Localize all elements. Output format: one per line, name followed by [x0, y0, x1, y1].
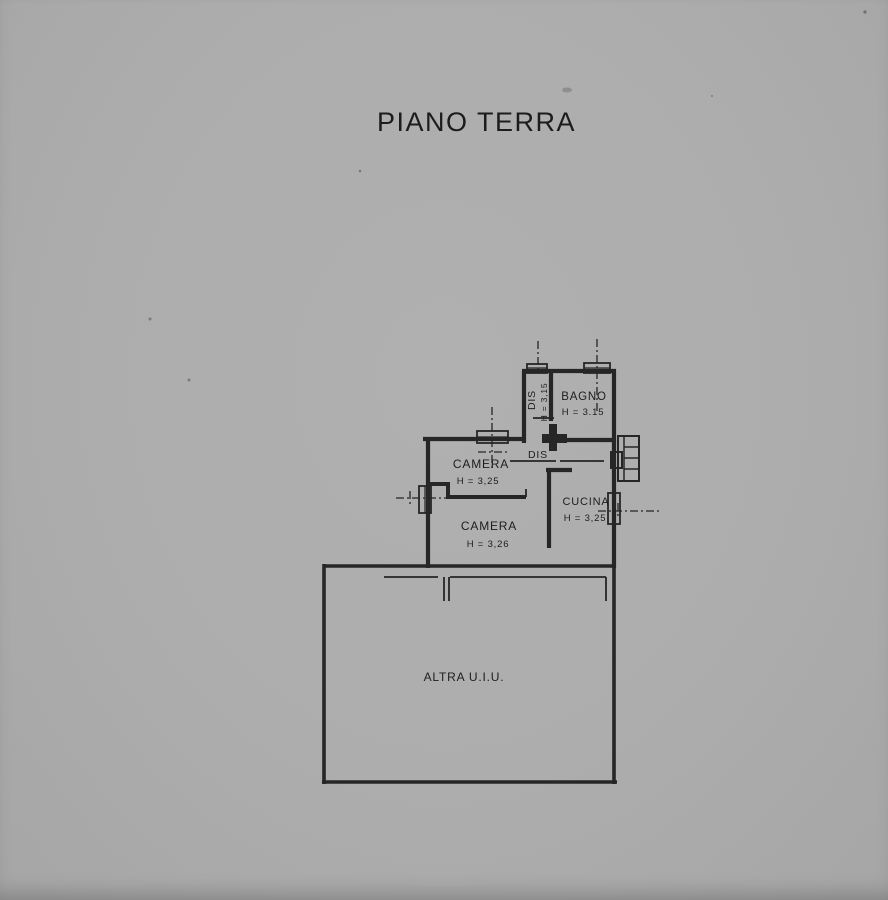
axis-lines: [396, 339, 660, 519]
room-bagno: BAGNO H = 3.15: [561, 391, 607, 418]
room-camera-upper: CAMERA H = 3,25: [453, 457, 509, 487]
room-cucina: CUCINA H = 3,25: [563, 496, 610, 524]
scan-artifacts: [149, 10, 867, 381]
room-label-bagno: BAGNO: [561, 391, 607, 403]
room-height-camera-lower: H = 3,26: [467, 539, 510, 550]
room-camera-lower: CAMERA H = 3,26: [461, 519, 517, 550]
room-label-altra-uiu: ALTRA U.I.U.: [424, 670, 505, 684]
scanned-page: PIANO TERRA: [0, 0, 888, 900]
room-dis-landing: DIS: [528, 449, 548, 461]
room-altra-uiu: ALTRA U.I.U.: [424, 670, 505, 684]
room-label-cucina: CUCINA: [563, 496, 610, 508]
room-label-camera-lower: CAMERA: [461, 519, 517, 533]
room-height-bagno: H = 3.15: [562, 407, 605, 418]
room-labels: DIS H = 3,15 BAGNO H = 3.15 DIS CAMERA H…: [424, 383, 610, 684]
room-dis-corridor: DIS H = 3,15: [526, 383, 549, 422]
room-height-cucina: H = 3,25: [564, 513, 607, 524]
room-height-camera-upper: H = 3,25: [457, 476, 500, 487]
wall-inner-faces: [384, 577, 606, 601]
wall-junction-cross: [542, 424, 567, 451]
room-label-dis-landing: DIS: [528, 449, 548, 461]
room-label-camera-upper: CAMERA: [453, 457, 509, 471]
room-label-dis-corridor: DIS: [526, 390, 538, 410]
room-height-dis-corridor: H = 3,15: [539, 383, 549, 422]
floor-plan-drawing: DIS H = 3,15 BAGNO H = 3.15 DIS CAMERA H…: [0, 0, 888, 900]
